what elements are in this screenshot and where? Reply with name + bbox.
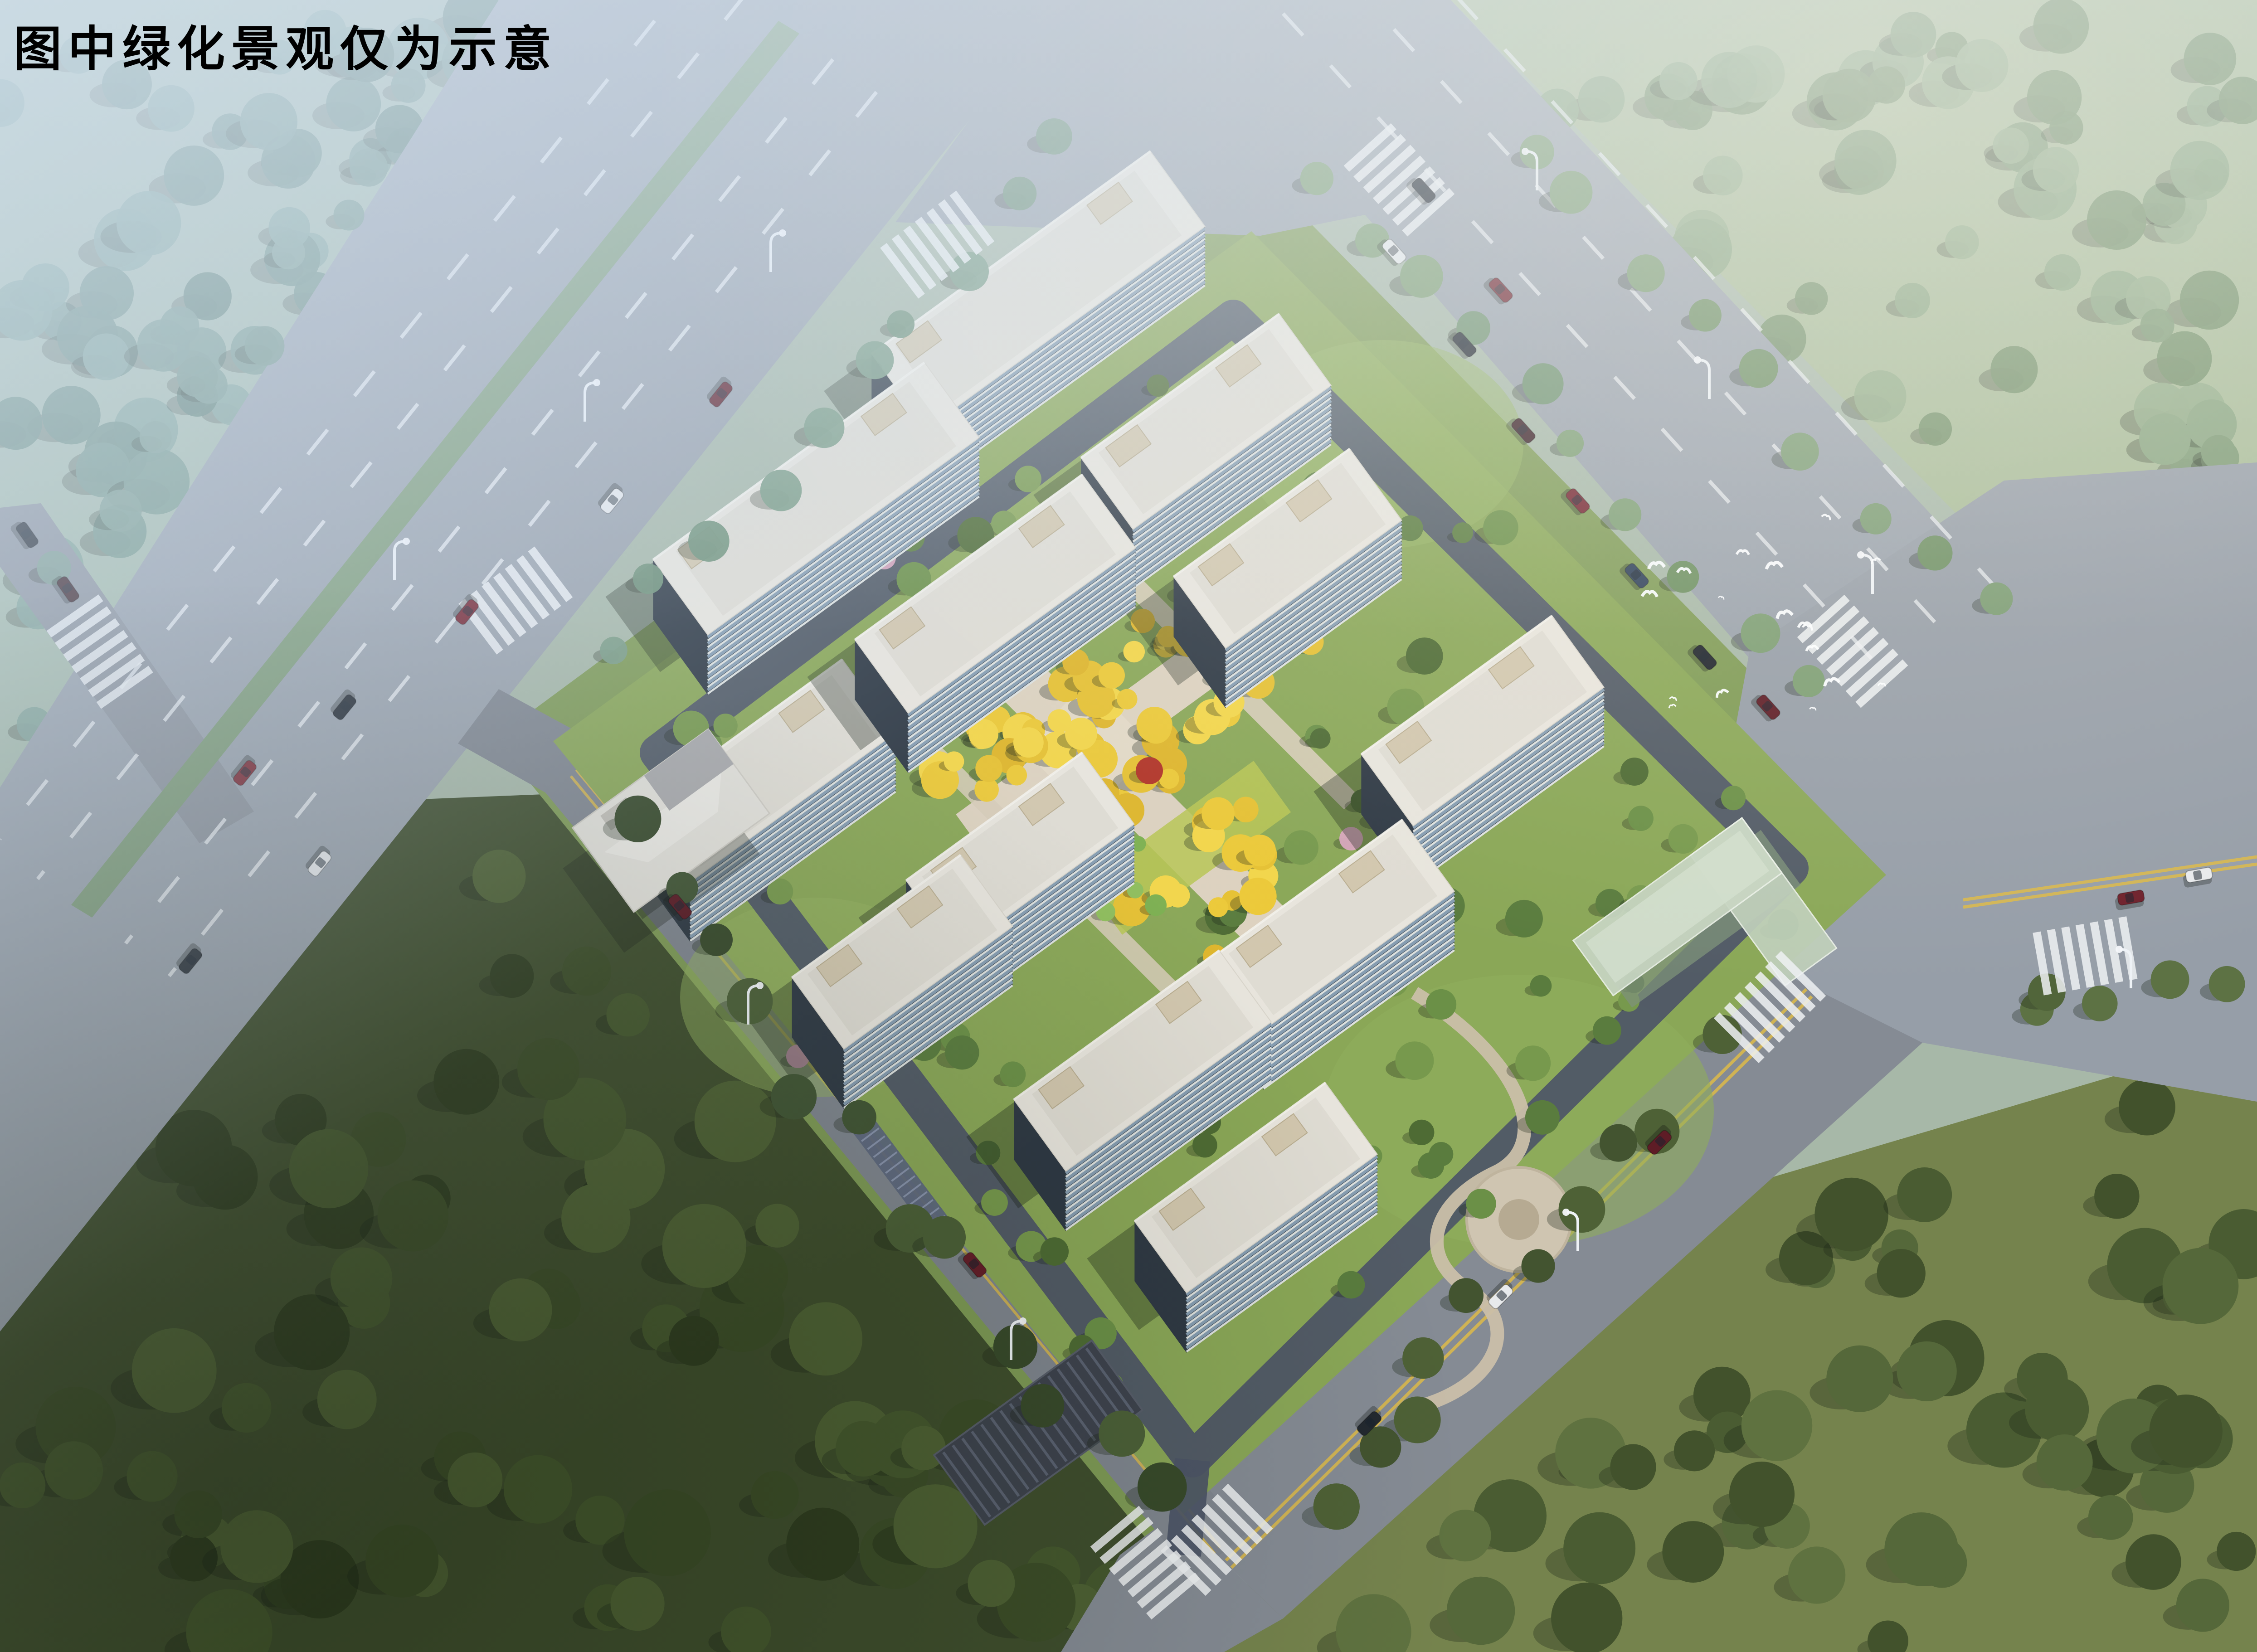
- shadow-vignette: [0, 0, 2257, 1652]
- rendering-canvas: [0, 0, 2257, 1652]
- caption-text: 图中绿化景观仅为示意: [14, 10, 558, 80]
- atmosphere-layer: [0, 0, 2257, 1652]
